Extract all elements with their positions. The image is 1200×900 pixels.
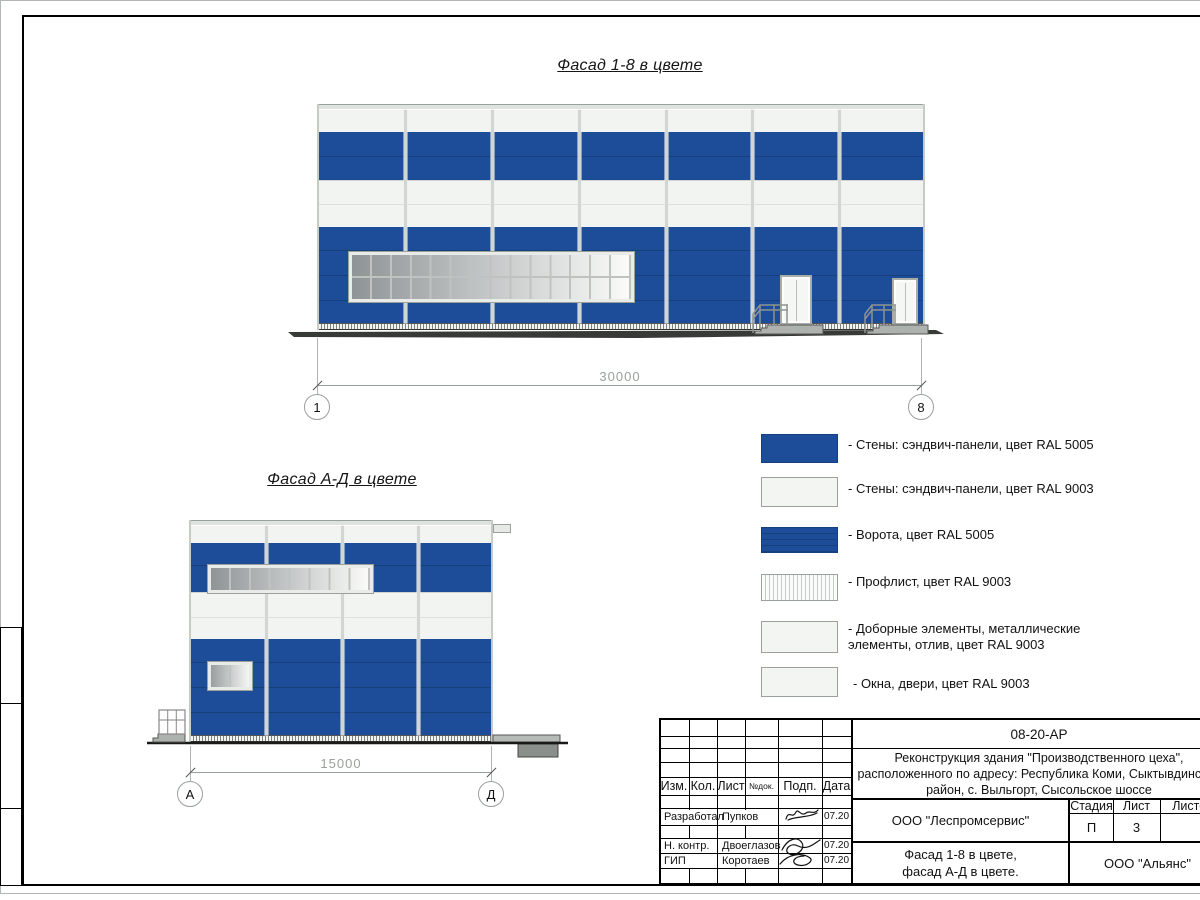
tb-date: 07.20 bbox=[822, 853, 851, 868]
legend-label: - Ворота, цвет RAL 5005 bbox=[848, 527, 994, 542]
tb-col-list: Лист bbox=[717, 777, 745, 795]
legend-label: - Стены: сэндвич-панели, цвет RAL 5005 bbox=[848, 437, 1094, 452]
margin-box-2 bbox=[0, 703, 22, 809]
tb-line bbox=[661, 795, 851, 796]
blue-band bbox=[319, 132, 923, 180]
frame-top bbox=[22, 15, 1200, 17]
legend-swatch-white-panel bbox=[761, 621, 838, 653]
legend-swatch-blue-panel bbox=[761, 434, 838, 463]
tb-line bbox=[689, 868, 690, 883]
drawing-sheet: Фасад 1-8 в цвете bbox=[0, 0, 1200, 900]
frame-left bbox=[22, 15, 24, 886]
tb-col-data: Дата bbox=[822, 777, 851, 795]
dimension-value: 30000 bbox=[520, 369, 720, 384]
door-platform bbox=[867, 325, 928, 334]
legend-swatch-gate bbox=[761, 527, 838, 553]
panel-joint bbox=[319, 204, 923, 205]
panel-joint bbox=[319, 156, 923, 157]
small-window bbox=[208, 662, 252, 690]
ground-line bbox=[288, 330, 944, 338]
tb-project-line3: район, с. Выльгорт, Сысольское шоссе bbox=[926, 782, 1152, 798]
tb-line bbox=[661, 868, 851, 869]
tb-sheet-name-line1: Фасад 1-8 в цвете, bbox=[904, 846, 1017, 863]
facade-a-d-title: Фасад А-Д в цвете bbox=[232, 471, 452, 489]
door-platform bbox=[153, 734, 185, 742]
signature bbox=[776, 834, 822, 870]
extension-line bbox=[190, 746, 191, 782]
signature bbox=[780, 806, 820, 824]
tb-col-izm: Изм. bbox=[659, 777, 689, 795]
legend-label: - Стены: сэндвич-панели, цвет RAL 9003 bbox=[848, 481, 1094, 496]
white-band bbox=[319, 180, 923, 227]
axis-marker-1: 1 bbox=[304, 394, 330, 420]
tb-listov-col: Листов bbox=[1160, 798, 1200, 813]
tb-border bbox=[659, 883, 1200, 885]
door-platform bbox=[755, 325, 823, 334]
tb-date: 07.20 bbox=[822, 838, 851, 853]
legend-swatch-profiled-sheet bbox=[761, 574, 838, 601]
axis-marker-d: Д bbox=[478, 781, 504, 807]
legend-label: - Доборные элементы, металлические bbox=[848, 621, 1080, 636]
tb-line bbox=[661, 825, 851, 826]
tb-sheet-name: Фасад 1-8 в цвете, фасад А-Д в цвете. bbox=[853, 843, 1068, 883]
dimension-value: 15000 bbox=[241, 756, 441, 771]
tb-line bbox=[689, 720, 690, 810]
gutter-outlet bbox=[493, 524, 511, 533]
tb-role: Н. контр. bbox=[661, 838, 717, 853]
title-block: Изм. Кол. Лист №док. Подп. Дата Разработ… bbox=[659, 718, 1200, 885]
white-band bbox=[319, 110, 923, 132]
margin-box-3 bbox=[0, 808, 22, 886]
tb-name: Коротаев bbox=[719, 853, 778, 868]
axis-marker-a: А bbox=[177, 781, 203, 807]
legend-label: - Окна, двери, цвет RAL 9003 bbox=[853, 676, 1030, 691]
tb-col-kol: Кол. bbox=[689, 777, 717, 795]
ribbon-window bbox=[208, 565, 373, 593]
legend-swatch-white-panel bbox=[761, 667, 838, 697]
facade-a-d-ground bbox=[140, 700, 580, 762]
tb-role: Разработал bbox=[661, 808, 717, 825]
dimension-line bbox=[190, 772, 492, 773]
extension-line bbox=[491, 746, 492, 782]
tb-org-design: ООО "Леспромсервис" bbox=[853, 800, 1068, 841]
legend-label: элементы, отлив, цвет RAL 9003 bbox=[848, 637, 1045, 652]
tb-col-podp: Подп. bbox=[778, 777, 822, 795]
facade-1-8-title: Фасад 1-8 в цвете bbox=[520, 57, 740, 75]
tb-stage-col: Стадия bbox=[1070, 798, 1113, 813]
tb-line bbox=[745, 720, 746, 810]
tb-org-customer: ООО "Альянс" bbox=[1070, 843, 1200, 883]
tb-name: Двоеглазов bbox=[719, 838, 778, 853]
foundation-step bbox=[518, 744, 558, 757]
panel-joint bbox=[319, 250, 923, 251]
dimension-line bbox=[317, 385, 922, 386]
tb-doc-code: 08-20-АР bbox=[853, 720, 1200, 748]
tb-list-value: 3 bbox=[1113, 814, 1160, 841]
margin-box-1 bbox=[0, 627, 22, 704]
tb-line bbox=[745, 868, 746, 883]
tb-line bbox=[661, 736, 851, 737]
paper-edge-top bbox=[0, 0, 1200, 1]
tb-project-line1: Реконструкция здания "Производственного … bbox=[895, 750, 1184, 766]
tb-name: Пупков bbox=[719, 808, 778, 825]
tb-line bbox=[717, 720, 718, 883]
tb-role: ГИП bbox=[661, 853, 717, 868]
legend-swatch-white-panel bbox=[761, 477, 838, 507]
axis-marker-8: 8 bbox=[908, 394, 934, 420]
ramp bbox=[493, 735, 560, 742]
tb-date: 07.20 bbox=[822, 808, 851, 825]
paper-edge-bottom bbox=[0, 893, 1200, 894]
tb-line bbox=[689, 825, 690, 838]
tb-line bbox=[661, 748, 851, 749]
tb-stage-value: П bbox=[1070, 814, 1113, 841]
tb-project: Реконструкция здания "Производственного … bbox=[853, 749, 1200, 798]
tb-line bbox=[661, 762, 851, 763]
facade-1-8-ground-and-stairs bbox=[280, 292, 950, 340]
tb-sheet-name-line2: фасад А-Д в цвете. bbox=[902, 863, 1018, 880]
ladder-grid bbox=[159, 710, 185, 734]
tb-list-col: Лист bbox=[1113, 798, 1160, 813]
tb-project-line2: расположенного по адресу: Республика Ком… bbox=[857, 766, 1200, 782]
legend-label: - Профлист, цвет RAL 9003 bbox=[848, 574, 1011, 589]
tb-col-ndok: №док. bbox=[745, 777, 778, 795]
tb-line bbox=[745, 825, 746, 838]
